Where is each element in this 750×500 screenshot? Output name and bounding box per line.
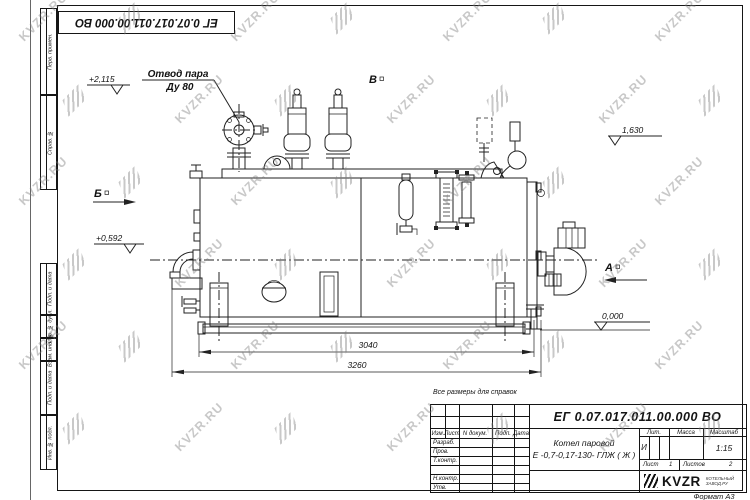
dimension-3260: 3260 xyxy=(172,284,541,377)
tb-scale-header: Масштаб xyxy=(710,430,738,436)
steam-outlet-label: Отвод пара Ду 80 xyxy=(142,69,239,122)
steam-outlet-label-line1: Отвод пара xyxy=(148,69,209,80)
margin-box-inv-podl: Инв. № подл. xyxy=(40,415,57,470)
shell-stub-fittings xyxy=(194,210,200,241)
elevation-mark-0000: 0,000 xyxy=(540,311,650,330)
margin-label: Подп. и дата xyxy=(45,264,56,314)
dimension-3040: 3040 xyxy=(199,320,534,357)
tb-mass-header: Масса xyxy=(677,430,695,436)
tb-row-prov: Пров. xyxy=(433,449,449,455)
tb-lit-value: И xyxy=(641,444,647,452)
view-letter: А xyxy=(604,262,613,274)
kvzr-logo-text: KVZR xyxy=(662,474,701,489)
margin-label: Подп. и дата xyxy=(45,362,56,414)
tb-product-name: Котел паровой Е -0,7-0,17-130- ГЛЖ ( Ж ) xyxy=(529,428,639,470)
tb-product-name-line2: Е -0,7-0,17-130- ГЛЖ ( Ж ) xyxy=(533,450,636,460)
tb-row-razrab: Разраб. xyxy=(433,440,455,446)
water-column-gauge xyxy=(397,174,417,235)
drain-valves xyxy=(182,296,200,313)
steam-outlet-label-line2: Ду 80 xyxy=(166,82,194,93)
tb-sheet-value: 1 xyxy=(669,462,672,468)
dimension-value: 3040 xyxy=(359,340,378,350)
tb-header-docum: N докум. xyxy=(463,431,487,437)
margin-label: Взам. инв. № xyxy=(45,339,56,360)
tb-row-utv: Утв. xyxy=(433,485,447,491)
view-letter: Б xyxy=(94,188,102,200)
tb-scale-value: 1:15 xyxy=(716,444,733,453)
kvzr-logo-icon xyxy=(644,474,658,488)
boiler-body xyxy=(200,169,545,317)
level-glass xyxy=(434,170,474,230)
tb-row-nkontr: Н.контр. xyxy=(433,476,458,482)
elevation-value: 0,000 xyxy=(602,311,624,321)
kvzr-logo-subtext: КОТЕЛЬНЫЙ ЗАВОД.РУ xyxy=(706,476,734,486)
safety-valve-2 xyxy=(325,89,351,169)
steam-outlet-valve xyxy=(224,112,268,169)
margin-label: Инв. № подл. xyxy=(45,416,56,469)
tb-doc-number: ЕГ 0.07.017.011.00.000 ВО xyxy=(529,405,746,428)
tb-logo-cell: KVZR КОТЕЛЬНЫЙ ЗАВОД.РУ xyxy=(639,470,746,492)
margin-box-podp-data-2: Подп. и дата xyxy=(40,361,57,415)
support-legs xyxy=(210,283,514,326)
manhole xyxy=(262,281,286,302)
kvzr-logo-subtext-line2: ЗАВОД.РУ xyxy=(706,481,734,486)
drawing-sheet: ЕГ 0.07.017.011.00.000 ВО Перв. примен. … xyxy=(0,0,750,500)
corner-valve xyxy=(190,165,202,178)
tb-row-tkontr: Т.контр. xyxy=(433,458,457,464)
tb-header-izm: Изм. xyxy=(432,431,445,437)
view-label-a: А xyxy=(604,262,647,283)
tb-lit-header: Лит. xyxy=(647,430,661,436)
title-block: Изм. Лист N докум. Подп. Дата Разраб. Пр… xyxy=(430,404,747,493)
top-stamp-text: ЕГ 0.07.017.011.00.000 ВО xyxy=(75,17,218,29)
tb-header-data: Дата xyxy=(513,431,529,437)
elevation-value: +0,592 xyxy=(96,233,123,243)
top-stamp: ЕГ 0.07.017.011.00.000 ВО xyxy=(58,11,235,34)
view-label-b: Б xyxy=(93,188,136,205)
elevation-value: 1,630 xyxy=(622,125,644,135)
base-frame xyxy=(198,322,530,334)
centerlines xyxy=(150,104,600,344)
margin-box-sprav-no: Справ. № xyxy=(40,95,57,190)
elevation-value: +2,115 xyxy=(89,74,115,84)
view-label-v: В xyxy=(369,74,384,86)
view-letter: В xyxy=(369,74,377,86)
tb-header-list: Лист xyxy=(444,431,459,437)
safety-valve-1 xyxy=(284,89,310,169)
tb-product-name-line1: Котел паровой xyxy=(554,438,615,448)
margin-box-perv-primen: Перв. примен. xyxy=(40,8,57,95)
feedwater-elbow xyxy=(170,250,202,289)
burner-assembly xyxy=(538,222,586,295)
format-label: Формат А3 xyxy=(664,492,750,500)
tb-header-podp: Подп. xyxy=(495,431,511,437)
tb-sheets-value: 2 xyxy=(729,462,732,468)
tb-sheet-label: Лист xyxy=(643,462,658,468)
elevation-mark-1630: 1,630 xyxy=(608,125,662,145)
elevation-mark-2115: +2,115 xyxy=(87,74,130,94)
elevation-mark-0592: +0,592 xyxy=(94,233,144,253)
margin-box-vzam-inv: Взам. инв. № xyxy=(40,338,57,361)
tb-sheets-label: Листов xyxy=(683,462,705,468)
margin-label: Справ. № xyxy=(45,96,56,189)
dimension-value: 3260 xyxy=(348,360,367,370)
reference-note: Все размеры для справок xyxy=(433,389,517,396)
margin-label: Перв. примен. xyxy=(45,9,56,94)
margin-box-podp-data-1: Подп. и дата xyxy=(40,263,57,315)
inspection-port xyxy=(320,272,338,316)
